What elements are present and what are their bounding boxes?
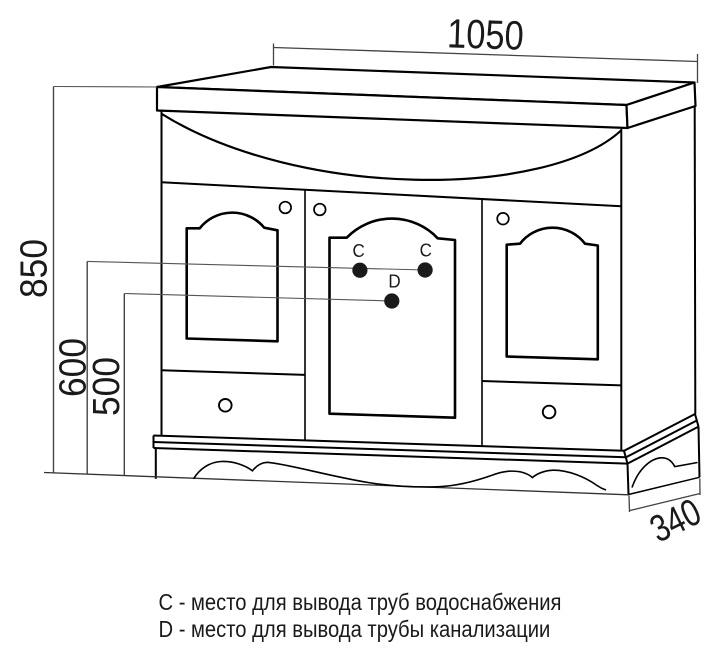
svg-text:C: C	[420, 240, 432, 261]
svg-text:C: C	[352, 240, 364, 261]
svg-text:340: 340	[644, 491, 708, 551]
svg-text:500: 500	[85, 357, 127, 416]
svg-text:1050: 1050	[446, 12, 524, 60]
svg-text:D - место для вывода трубы кан: D - место для вывода трубы канализации	[159, 616, 551, 643]
svg-text:D: D	[388, 271, 400, 292]
svg-text:C - место для вывода труб водо: C - место для вывода труб водоснабжения	[159, 589, 562, 616]
svg-text:850: 850	[12, 239, 54, 298]
